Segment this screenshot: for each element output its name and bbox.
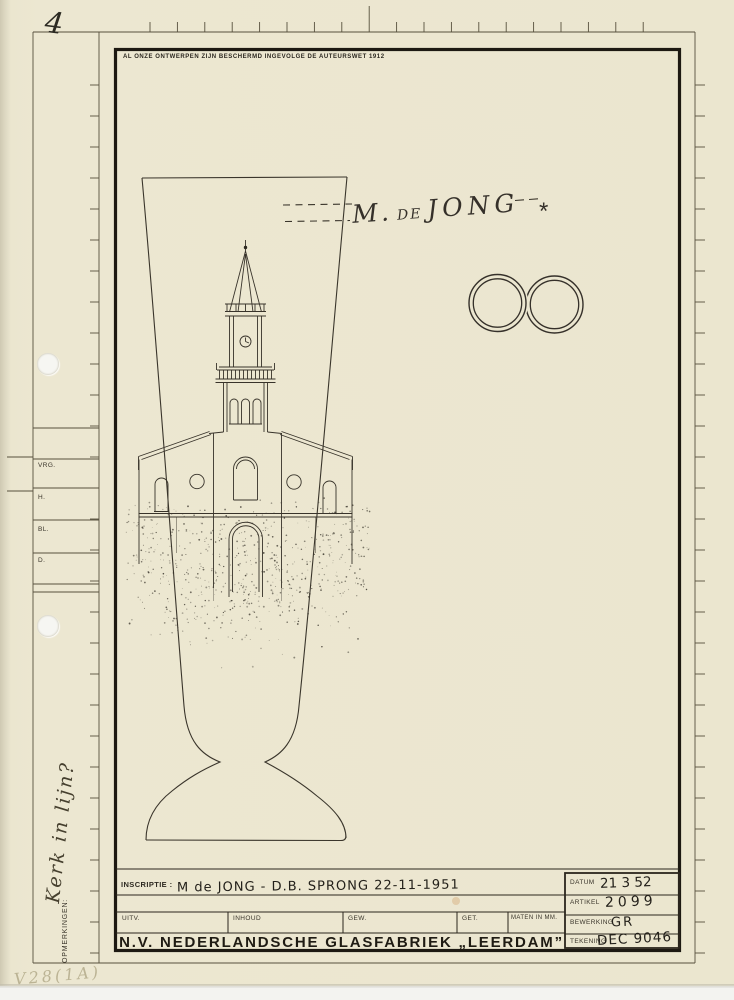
left-round-window <box>190 474 204 488</box>
right-round-window <box>287 475 301 489</box>
rust-spot <box>452 897 460 905</box>
field-value-datum: 21 3 52 <box>600 874 652 892</box>
col-label-gew: GEW. <box>348 915 367 922</box>
asterisk-mark: * <box>539 200 548 224</box>
margin-label-d: D. <box>38 557 45 564</box>
scanned-drawing-sheet: 4 AL ONZE ONTWERPEN ZIJN BESCHERMD INGEV… <box>0 0 734 1000</box>
col-label-get: GET. <box>462 915 478 922</box>
field-value-artikel: 2099 <box>605 893 657 911</box>
engraved-name-de: de <box>396 206 423 224</box>
field-label-datum: DATUM <box>570 879 595 886</box>
inscription-label: INSCRIPTIE : <box>121 880 172 889</box>
drawing-frame-border <box>116 50 680 951</box>
inscription-row: INSCRIPTIE : M de JONG - D.B. SPRONG 22-… <box>121 877 460 895</box>
margin-label-h: H. <box>38 494 45 501</box>
clock-hands <box>246 338 250 344</box>
left-wing-roof <box>139 432 212 565</box>
margin-ruler-lines <box>33 6 705 963</box>
col-label-inhoud: INHOUD <box>233 915 261 922</box>
inscription-value: M de JONG - D.B. SPRONG 22-11-1951 <box>177 878 460 896</box>
copyright-notice: AL ONZE ONTWERPEN ZIJN BESCHERMD INGEVOL… <box>123 54 385 60</box>
nave-window <box>234 457 258 500</box>
ruler-ticks <box>90 6 705 953</box>
right-arched-window <box>322 481 337 514</box>
company-name: N.V. NEDERLANDSCHE GLASFABRIEK „LEERDAM” <box>118 934 565 951</box>
nave-roofline <box>209 432 282 434</box>
stipple-dots <box>126 497 371 668</box>
goblet-outline <box>142 177 347 841</box>
paper-edge-shadow <box>0 984 734 988</box>
right-wing-roof <box>280 432 353 565</box>
string-course <box>139 514 353 518</box>
col-label-maten: MATEN IN MM. <box>511 915 557 921</box>
cornice-hatch <box>220 371 272 380</box>
spire-finial <box>244 246 247 249</box>
field-label-bewerking: BEWERKING <box>570 919 613 926</box>
entrance-door <box>229 522 263 597</box>
col-label-uitv: UITV. <box>122 915 140 922</box>
facade-walls <box>214 434 282 589</box>
margin-label-vrg: VRG. <box>38 462 56 469</box>
field-value-bewerking: GR <box>611 915 635 931</box>
spire <box>230 251 262 312</box>
wedding-rings <box>469 275 583 334</box>
technical-drawing-canvas <box>0 0 734 1000</box>
tower-cornice <box>216 363 276 383</box>
margin-label-bl: BL. <box>38 526 49 533</box>
margin-cell-lines <box>7 428 99 592</box>
tower-windows <box>229 399 262 424</box>
field-label-artikel: ARTIKEL <box>570 899 600 906</box>
remarks-label: OPMERKINGEN: <box>62 899 69 963</box>
engraved-name-prefix: M. <box>351 197 392 229</box>
